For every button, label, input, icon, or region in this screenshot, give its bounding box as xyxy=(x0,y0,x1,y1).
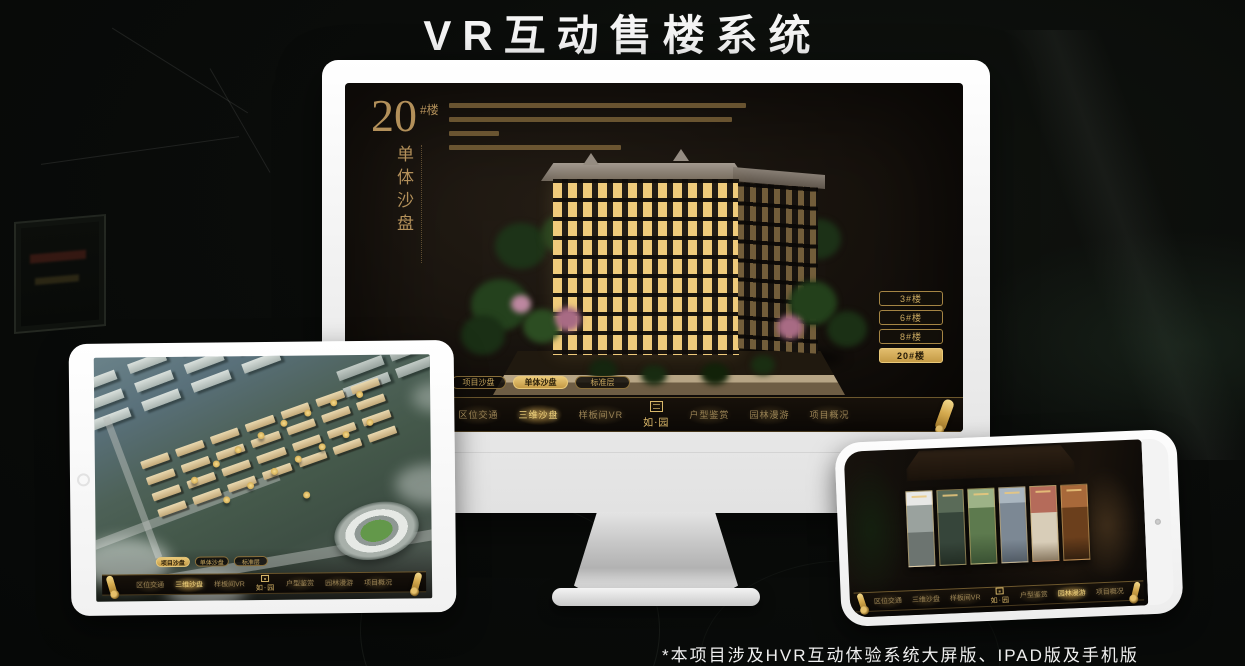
building-badge[interactable] xyxy=(343,431,350,438)
text-line xyxy=(449,103,746,108)
brand-logo: 如·园 xyxy=(990,587,1010,606)
text-line xyxy=(449,117,732,122)
text-line xyxy=(449,131,499,136)
scroll-ornament-icon xyxy=(105,575,117,596)
nav-item-floorplans[interactable]: 户型鉴赏 xyxy=(286,578,314,588)
description-text-block xyxy=(449,103,746,159)
gallery-panel[interactable] xyxy=(998,486,1028,563)
sub-tab-project-sandbox[interactable]: 项目沙盘 xyxy=(156,557,190,567)
brand-logo-text: 如·园 xyxy=(256,582,275,592)
nav-item-model-room-vr[interactable]: 样板间VR xyxy=(214,579,245,589)
home-button xyxy=(77,473,90,486)
brand-logo: 如·园 xyxy=(643,401,669,429)
background-map-line xyxy=(41,136,239,165)
nav-item-location[interactable]: 区位交通 xyxy=(136,580,164,590)
phone-screen: 区位交通 三维沙盘 样板间VR 如·园 户型鉴赏 园林漫游 项目概况 xyxy=(844,439,1149,617)
building-number: 20 xyxy=(371,93,417,139)
shrub xyxy=(641,365,667,385)
nav-item-model-room-vr[interactable]: 样板间VR xyxy=(579,408,624,421)
nav-item-3d-sandbox[interactable]: 三维沙盘 xyxy=(519,408,559,421)
nav-item-floorplans[interactable]: 户型鉴赏 xyxy=(1020,589,1048,600)
background-plaque xyxy=(14,214,106,334)
brand-logo: 如·园 xyxy=(256,574,276,592)
nav-item-3d-sandbox[interactable]: 三维沙盘 xyxy=(175,579,203,589)
building-button-20[interactable]: 20#楼 xyxy=(879,348,943,363)
cloud xyxy=(412,382,432,413)
building-button-8[interactable]: 8#楼 xyxy=(879,329,943,344)
timber-gate-silhouette xyxy=(906,444,1075,481)
gallery-panel[interactable] xyxy=(936,489,966,566)
brand-logo-text: 如·园 xyxy=(991,595,1011,606)
building-badge[interactable] xyxy=(191,477,198,484)
nav-item-3d-sandbox[interactable]: 三维沙盘 xyxy=(912,594,940,605)
nav-item-garden-tour[interactable]: 园林漫游 xyxy=(749,408,789,421)
sub-tab-project-sandbox[interactable]: 项目沙盘 xyxy=(451,376,506,389)
building-badge[interactable] xyxy=(223,496,230,503)
blossom-tree xyxy=(511,295,531,313)
sub-tab-standard-floor[interactable]: 标准层 xyxy=(234,556,268,566)
ruyuan-seal-icon xyxy=(650,401,663,412)
footnote-text: *本项目涉及HVR互动体验系统大屏版、IPAD版及手机版 xyxy=(662,641,1139,666)
nav-item-project-overview[interactable]: 项目概况 xyxy=(364,577,392,587)
building-badge[interactable] xyxy=(295,456,302,463)
scroll-ornament-icon xyxy=(411,572,423,593)
building-badge[interactable] xyxy=(213,460,220,467)
gallery-panel[interactable] xyxy=(1029,485,1059,562)
poster-title: VR互动售楼系统 xyxy=(0,2,1245,63)
building-badge[interactable] xyxy=(271,468,278,475)
background-map-line xyxy=(210,68,271,172)
building-badge[interactable] xyxy=(258,432,265,439)
gallery-panel[interactable] xyxy=(1060,484,1090,561)
stadium xyxy=(328,493,425,569)
scene-gallery xyxy=(905,484,1090,568)
sub-tab-standard-floor[interactable]: 标准层 xyxy=(575,376,630,389)
shrub xyxy=(751,355,775,375)
phone-bezel xyxy=(1141,438,1174,605)
industrial-buildings xyxy=(94,354,282,430)
nav-item-project-overview[interactable]: 项目概况 xyxy=(809,408,849,421)
building-button-6[interactable]: 6#楼 xyxy=(879,310,943,325)
building-facade xyxy=(553,179,739,355)
monitor-stand xyxy=(574,512,738,592)
building-badge[interactable] xyxy=(235,446,242,453)
scroll-ornament-icon xyxy=(934,398,955,432)
blossom-tree xyxy=(555,307,581,331)
sandbox-sub-tabs: 项目沙盘 单体沙盘 标准层 xyxy=(451,376,630,389)
building-number-suffix: #楼 xyxy=(420,101,439,118)
text-line xyxy=(449,145,621,150)
gallery-panel[interactable] xyxy=(967,488,997,565)
section-headline: 20 #楼 单体沙盘 xyxy=(371,93,439,263)
building-badge[interactable] xyxy=(304,409,311,416)
sandbox-sub-tabs: 项目沙盘 单体沙盘 标准层 xyxy=(156,556,268,567)
foliage-silhouette xyxy=(844,457,910,602)
building-badge[interactable] xyxy=(280,420,287,427)
ruyuan-seal-icon xyxy=(996,587,1004,594)
nav-item-garden-tour[interactable]: 园林漫游 xyxy=(1058,588,1086,599)
building-selector: 3#楼 6#楼 8#楼 20#楼 xyxy=(879,291,943,363)
sub-tab-single-sandbox[interactable]: 单体沙盘 xyxy=(195,556,229,566)
section-title-vertical: 单体沙盘 xyxy=(391,145,422,263)
tree xyxy=(461,315,505,355)
shrub xyxy=(701,363,729,385)
building-badge[interactable] xyxy=(247,482,254,489)
tree xyxy=(495,223,547,269)
gallery-panel[interactable] xyxy=(905,490,935,567)
tablet-screen: 项目沙盘 单体沙盘 标准层 区位交通 三维沙盘 样板间VR 如·园 户型鉴赏 园… xyxy=(94,354,433,602)
nav-item-model-room-vr[interactable]: 样板间VR xyxy=(950,592,981,603)
building-badge[interactable] xyxy=(356,391,363,398)
tablet-device: 项目沙盘 单体沙盘 标准层 区位交通 三维沙盘 样板间VR 如·园 户型鉴赏 园… xyxy=(69,340,457,616)
brand-logo-text: 如·园 xyxy=(643,414,669,429)
promo-poster: VR互动售楼系统 xyxy=(0,0,1245,666)
nav-item-garden-tour[interactable]: 园林漫游 xyxy=(325,578,353,588)
building-badge[interactable] xyxy=(330,399,337,406)
tree xyxy=(827,311,867,347)
blossom-tree xyxy=(777,315,803,339)
building-button-3[interactable]: 3#楼 xyxy=(879,291,943,306)
background-aerial-texture xyxy=(945,230,1245,460)
scroll-ornament-icon xyxy=(1131,581,1141,600)
sub-tab-single-sandbox[interactable]: 单体沙盘 xyxy=(513,376,568,389)
nav-item-project-overview[interactable]: 项目概况 xyxy=(1096,586,1124,597)
monitor-base xyxy=(552,588,760,606)
nav-item-location[interactable]: 区位交通 xyxy=(459,408,499,421)
nav-item-floorplans[interactable]: 户型鉴赏 xyxy=(689,408,729,421)
building-badge[interactable] xyxy=(319,443,326,450)
building-badge[interactable] xyxy=(303,492,310,499)
nav-item-location[interactable]: 区位交通 xyxy=(874,596,902,607)
smartphone-device: 区位交通 三维沙盘 样板间VR 如·园 户型鉴赏 园林漫游 项目概况 xyxy=(834,429,1183,627)
tablet-nav-bar: 区位交通 三维沙盘 样板间VR 如·园 户型鉴赏 园林漫游 项目概况 xyxy=(102,571,426,595)
building-badge[interactable] xyxy=(366,419,373,426)
ruyuan-seal-icon xyxy=(261,574,269,581)
camera-icon xyxy=(1155,519,1161,525)
cloud xyxy=(395,464,432,505)
